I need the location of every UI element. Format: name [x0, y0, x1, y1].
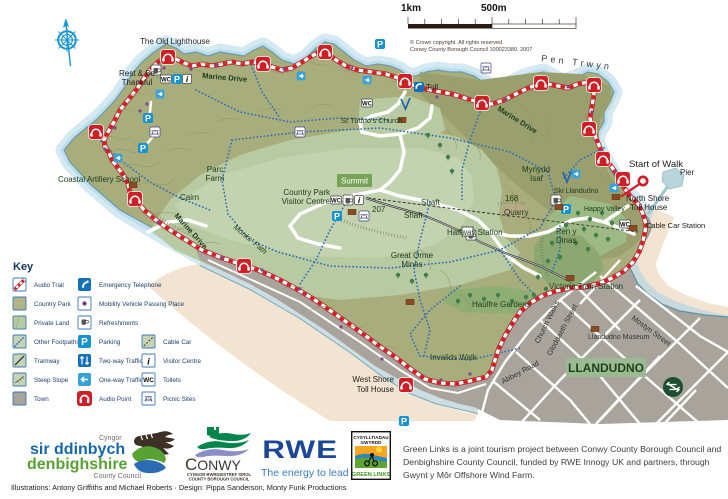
- svg-text:Toll House: Toll House: [357, 385, 395, 394]
- svg-text:Conwy County Borough Council 1: Conwy County Borough Council 100023380. …: [410, 47, 532, 53]
- svg-text:Visitor Centre: Visitor Centre: [282, 197, 331, 206]
- svg-text:COUNTY BOROUGH COUNCIL: COUNTY BOROUGH COUNCIL: [189, 477, 250, 482]
- svg-text:Shaft: Shaft: [421, 198, 440, 207]
- svg-text:Other Footpaths: Other Footpaths: [34, 339, 80, 346]
- svg-text:Toll House: Toll House: [630, 203, 668, 212]
- svg-text:Parc: Parc: [207, 165, 223, 174]
- svg-text:Cairn: Cairn: [180, 193, 199, 202]
- svg-text:Parking: Parking: [99, 339, 121, 346]
- svg-text:i: i: [147, 357, 150, 368]
- svg-text:Country Park: Country Park: [283, 188, 331, 197]
- svg-text:Cable Car Station: Cable Car Station: [646, 221, 705, 230]
- svg-text:North Shore: North Shore: [626, 194, 670, 203]
- svg-text:Cable Car: Cable Car: [163, 339, 191, 346]
- svg-text:Visitor Centre: Visitor Centre: [163, 358, 202, 365]
- svg-text:1km: 1km: [401, 3, 421, 14]
- svg-text:207: 207: [372, 205, 386, 214]
- svg-text:Quarry: Quarry: [504, 208, 528, 217]
- svg-text:Refreshments: Refreshments: [99, 320, 138, 327]
- svg-text:St Tudno's Church: St Tudno's Church: [341, 116, 402, 125]
- svg-text:Toll: Toll: [426, 83, 438, 92]
- svg-text:Rest & Be: Rest & Be: [119, 69, 156, 78]
- svg-text:West Shore: West Shore: [352, 375, 394, 384]
- svg-text:Mynydd: Mynydd: [522, 165, 550, 174]
- svg-text:Audio Point: Audio Point: [99, 396, 131, 403]
- svg-text:denbighshire: denbighshire: [27, 456, 128, 473]
- svg-text:Llandudno Museum: Llandudno Museum: [588, 334, 650, 341]
- svg-text:Mobility Vehicle Passing Place: Mobility Vehicle Passing Place: [99, 301, 185, 308]
- svg-text:168: 168: [505, 194, 519, 203]
- svg-text:Audio Trail: Audio Trail: [34, 282, 64, 289]
- svg-text:Tramway: Tramway: [34, 358, 61, 365]
- svg-text:Ski Llandudno: Ski Llandudno: [554, 188, 598, 195]
- svg-text:Haulfre Gardens: Haulfre Gardens: [472, 300, 531, 309]
- svg-text:Summit: Summit: [341, 177, 369, 186]
- svg-text:The Old Lighthouse: The Old Lighthouse: [140, 37, 210, 46]
- svg-text:Toilets: Toilets: [163, 377, 181, 384]
- svg-text:Mines: Mines: [401, 260, 422, 269]
- svg-text:Emergency Telephone: Emergency Telephone: [99, 282, 162, 289]
- svg-text:Farm: Farm: [206, 174, 225, 183]
- svg-text:Start of Walk: Start of Walk: [629, 159, 683, 170]
- svg-text:Shaft: Shaft: [404, 211, 423, 220]
- svg-text:RWE: RWE: [262, 435, 338, 463]
- svg-text:Two-way Traffic: Two-way Traffic: [99, 358, 143, 365]
- svg-text:Private Land: Private Land: [34, 320, 70, 327]
- svg-text:P: P: [81, 337, 88, 348]
- svg-text:Steep Slope: Steep Slope: [34, 377, 69, 384]
- svg-text:Dinas: Dinas: [556, 236, 576, 245]
- svg-text:Coastal Artillery School: Coastal Artillery School: [58, 175, 140, 184]
- svg-text:Happy Valley: Happy Valley: [584, 206, 625, 213]
- svg-text:Victoria Tram Station: Victoria Tram Station: [549, 282, 623, 291]
- svg-text:WC: WC: [143, 377, 154, 384]
- svg-text:Halfway Station: Halfway Station: [447, 228, 503, 237]
- svg-text:Great Orme: Great Orme: [391, 251, 434, 260]
- svg-text:500m: 500m: [481, 3, 507, 14]
- svg-text:LLANDUDNO: LLANDUDNO: [568, 361, 644, 375]
- svg-text:Town: Town: [34, 396, 49, 403]
- svg-text:One-way Traffic: One-way Traffic: [99, 377, 143, 384]
- svg-text:Key: Key: [13, 261, 34, 273]
- svg-text:Picnic Sites: Picnic Sites: [163, 396, 196, 403]
- svg-text:Pen y: Pen y: [556, 227, 576, 236]
- svg-text:The energy to lead: The energy to lead: [261, 467, 348, 479]
- svg-text:GWYRDD: GWYRDD: [361, 440, 383, 445]
- svg-text:Isaf: Isaf: [530, 174, 544, 183]
- svg-text:Thankful: Thankful: [122, 78, 153, 87]
- svg-text:Invalids Walk: Invalids Walk: [430, 353, 478, 362]
- svg-text:County Council: County Council: [94, 473, 142, 480]
- svg-text:GREEN LINKS: GREEN LINKS: [352, 472, 390, 478]
- svg-text:Country Park: Country Park: [34, 301, 72, 308]
- svg-text:Pier: Pier: [680, 168, 695, 177]
- svg-text:© Crown copyright. All rights: © Crown copyright. All rights reserved.: [410, 39, 504, 46]
